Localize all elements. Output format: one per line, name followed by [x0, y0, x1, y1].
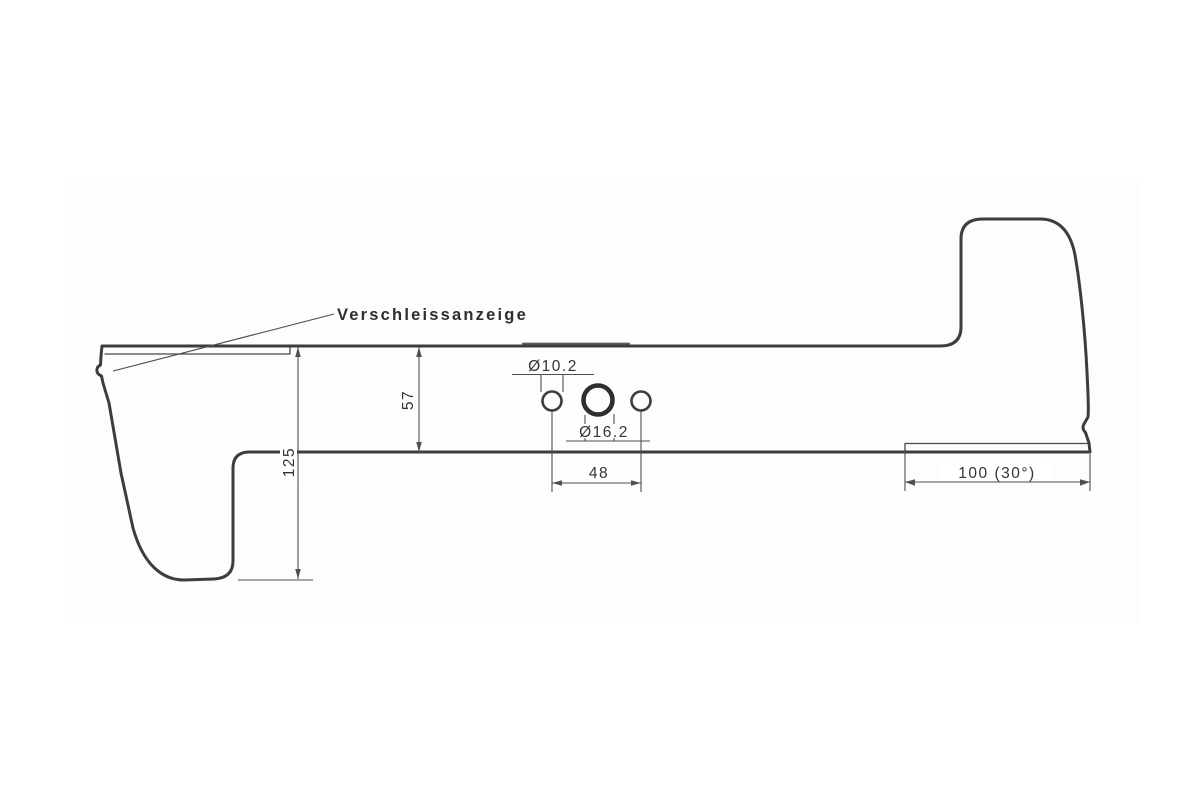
scan-background: [65, 178, 1140, 623]
mower-blade-drawing: Verschleissanzeige 57 125 Ø10.2: [0, 0, 1200, 800]
wear-indicator-label: Verschleissanzeige: [337, 306, 528, 324]
dim-label-10-2: Ø10.2: [528, 358, 578, 375]
dim-label-125: 125: [281, 447, 298, 477]
dim-label-57: 57: [400, 390, 417, 410]
dim-label-16-2: Ø16.2: [579, 424, 629, 441]
dim-label-48: 48: [589, 465, 609, 482]
technical-drawing-page: Verschleissanzeige 57 125 Ø10.2: [0, 0, 1200, 800]
dim-label-100: 100 (30°): [958, 465, 1035, 482]
